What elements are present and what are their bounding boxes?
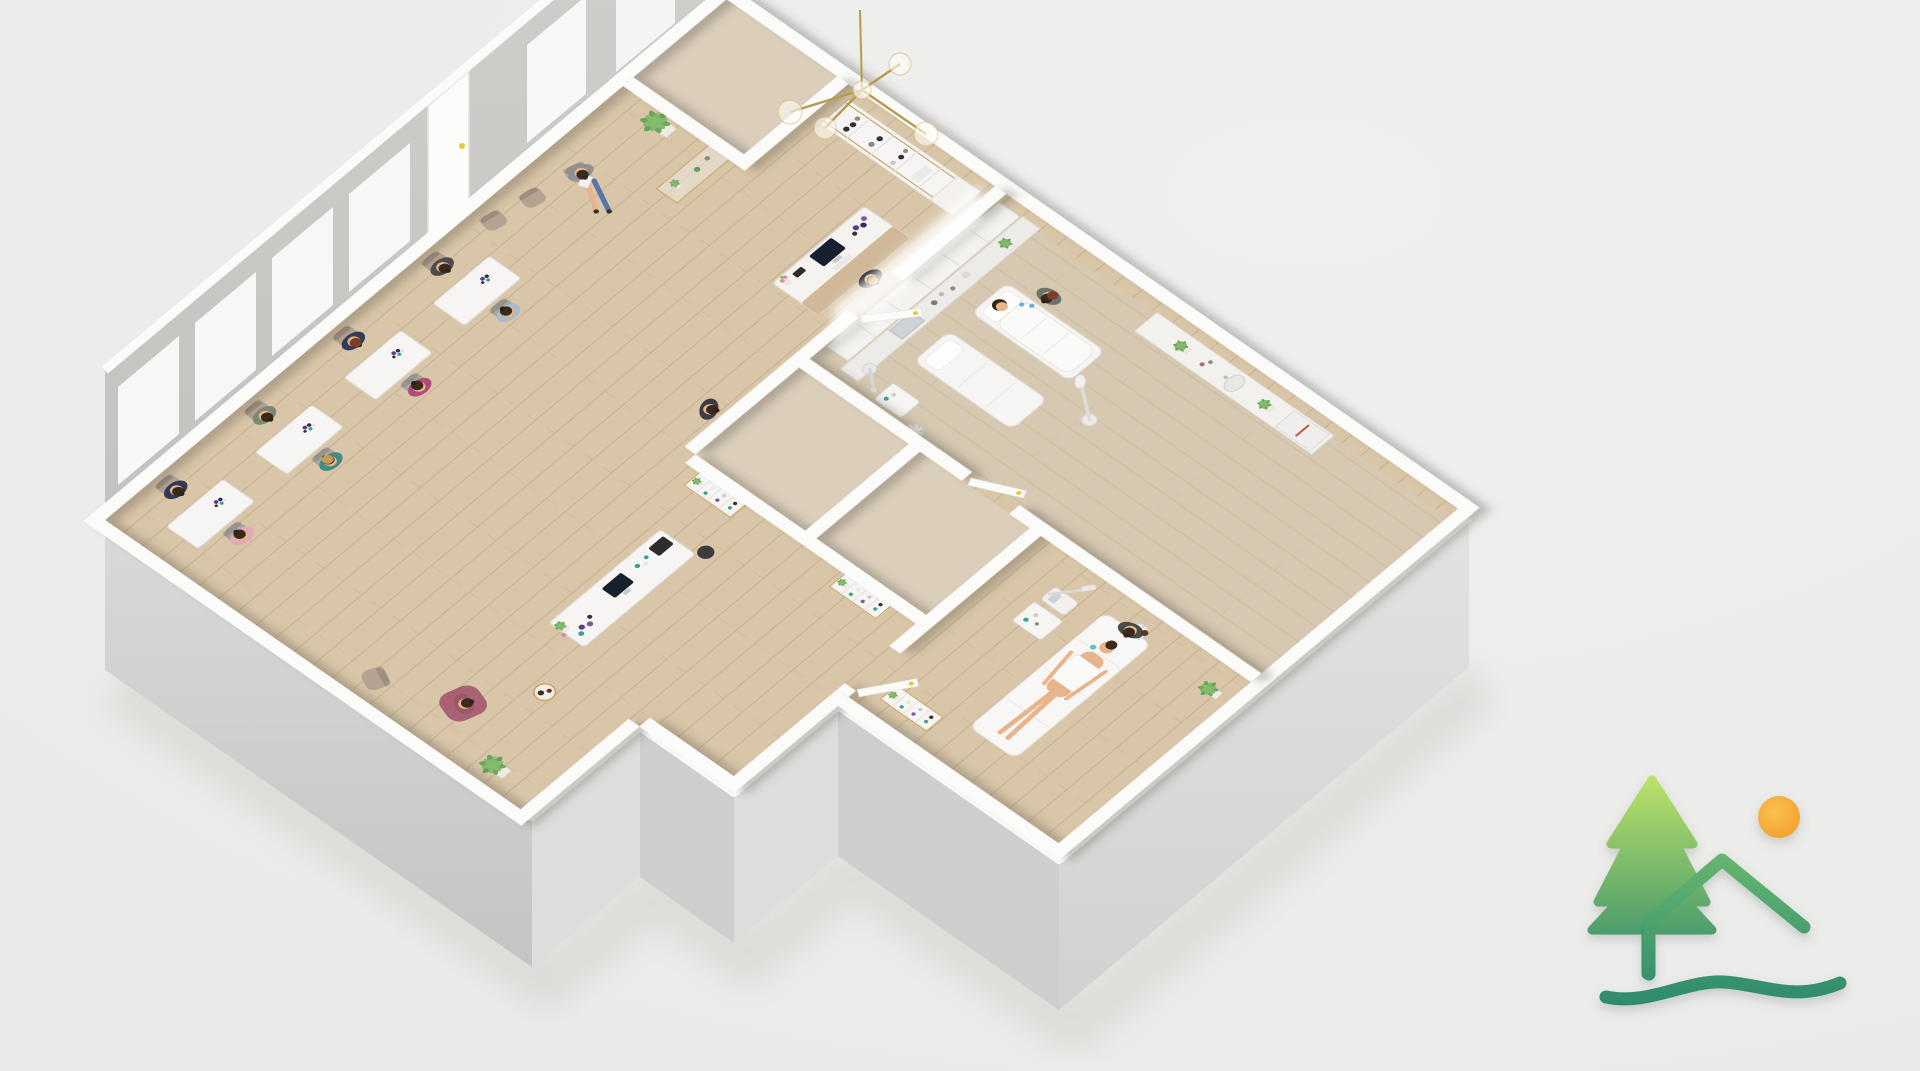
sun-icon [1758, 796, 1800, 838]
entry-door-handle [459, 143, 465, 149]
floorplan-render [0, 0, 1920, 1071]
floorplan-canvas [0, 0, 1920, 1071]
